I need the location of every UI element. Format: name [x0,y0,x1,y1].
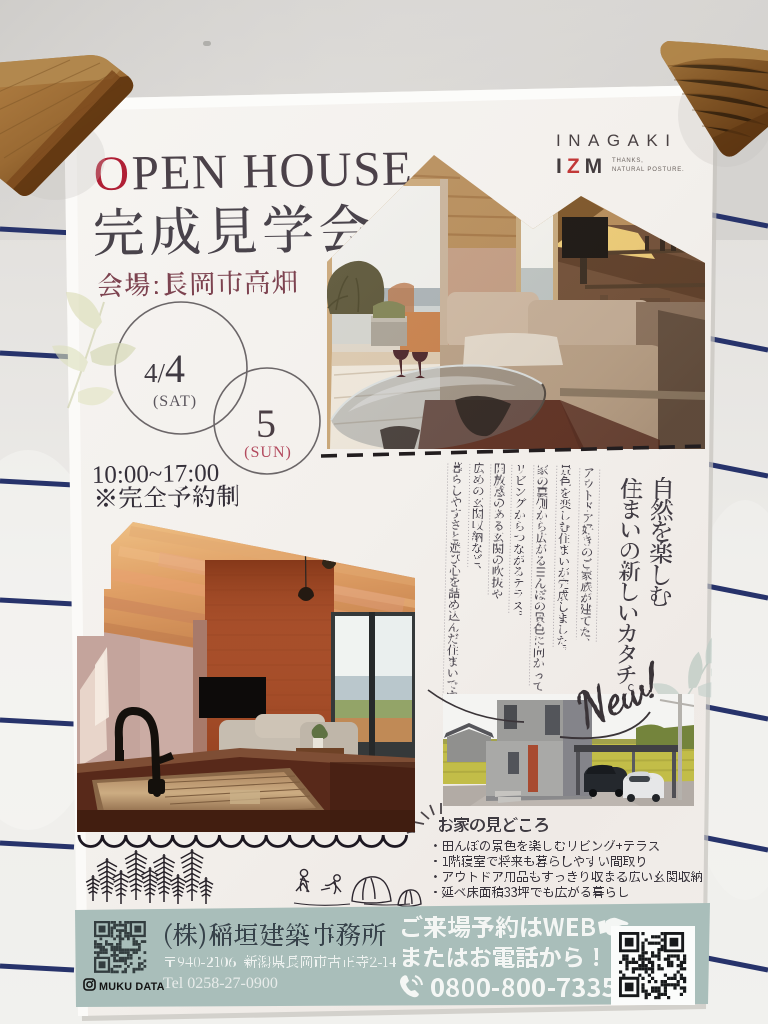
svg-text:NATURAL POSTURE.: NATURAL POSTURE. [612,167,684,173]
svg-text:(SUN): (SUN) [244,444,292,461]
svg-text:MUKU DATA: MUKU DATA [99,981,165,993]
svg-text:5: 5 [256,401,276,446]
svg-text:INAGAKI: INAGAKI [556,131,677,150]
svg-text:Tel 0258-27-0900: Tel 0258-27-0900 [163,975,278,992]
svg-text:IZM: IZM [556,155,607,178]
svg-text:(SAT): (SAT) [153,393,197,410]
svg-text:PEN HOUSE: PEN HOUSE [131,140,414,200]
svg-text:THANKS,: THANKS, [612,158,644,164]
svg-text:10:00~17:00: 10:00~17:00 [92,460,220,489]
